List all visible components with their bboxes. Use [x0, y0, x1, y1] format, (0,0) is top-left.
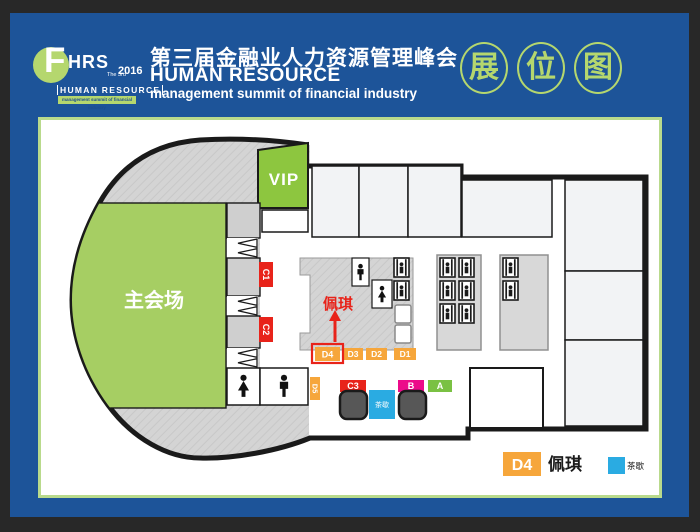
door-icon [227, 238, 258, 258]
logo-line1: HUMAN RESOURCE [57, 85, 163, 95]
elevator-icon [440, 258, 455, 277]
booth-d1-label: D1 [400, 349, 411, 359]
elevator-icon [459, 281, 474, 300]
page: { "header": { "logo": { "f": "F", "brand… [0, 0, 700, 532]
legend-tea-label: 茶歇 [627, 461, 645, 471]
room [565, 340, 643, 426]
door-icon [227, 296, 258, 316]
wall-block [227, 316, 260, 348]
room [565, 180, 643, 271]
highlight-name: 佩琪 [323, 295, 353, 313]
booth-c2-label: C2 [261, 324, 271, 336]
floor-plan: VIP C1 C2 [38, 117, 662, 498]
elevator-icon [394, 258, 409, 277]
page-title-english: HUMAN RESOURCE [150, 65, 341, 87]
booth-c1-label: C1 [261, 269, 271, 281]
room [312, 166, 359, 237]
room [408, 166, 461, 237]
room-below-vip [262, 210, 308, 232]
booth-a-label: A [437, 381, 444, 391]
booth-d2-label: D2 [371, 349, 382, 359]
booth-map-badge: 展 位 图 [460, 42, 622, 94]
booth-d4-label: D4 [322, 350, 334, 360]
page-subtitle: management summit of financial industry [150, 86, 417, 101]
storage-cell [395, 325, 411, 343]
door-icon [227, 348, 258, 368]
vip-label: VIP [269, 170, 299, 189]
elevator-icon [394, 281, 409, 300]
booth-b-label: B [408, 381, 415, 391]
tea-break-label: 茶歇 [375, 400, 389, 409]
logo-line2: management summit of financial industry [58, 96, 136, 104]
table [399, 391, 426, 419]
elevator-icon [503, 281, 518, 300]
badge-char-1: 展 [460, 42, 508, 94]
logo-f-letter: F [44, 43, 65, 78]
blue-background: F HRS The 3rd 2016 HUMAN RESOURCE manage… [10, 13, 689, 517]
room [470, 368, 543, 428]
table [340, 391, 367, 419]
booth-c3-label: C3 [347, 381, 359, 391]
main-hall-label: 主会场 [124, 288, 184, 312]
legend-booth-name: 佩琪 [548, 454, 582, 474]
logo-year: 2016 [118, 65, 142, 77]
room [565, 271, 643, 340]
badge-char-3: 图 [574, 42, 622, 94]
logo-brand: HRS [68, 52, 109, 73]
room [462, 180, 552, 237]
elevator-icon [459, 258, 474, 277]
legend-tea-swatch [608, 457, 625, 474]
badge-char-2: 位 [517, 42, 565, 94]
storage-cell [395, 305, 411, 323]
legend-booth-label: D4 [512, 457, 533, 474]
elevator-icon [459, 304, 474, 323]
floor-plan-panel: VIP C1 C2 [38, 117, 662, 498]
elevator-icon [503, 258, 518, 277]
elevator-icon [440, 304, 455, 323]
booth-d5-label: D5 [311, 384, 320, 394]
elevator-icon [440, 281, 455, 300]
room [359, 166, 408, 237]
booth-d3-label: D3 [348, 349, 359, 359]
wall-block [227, 258, 260, 296]
wall-block [227, 203, 260, 238]
